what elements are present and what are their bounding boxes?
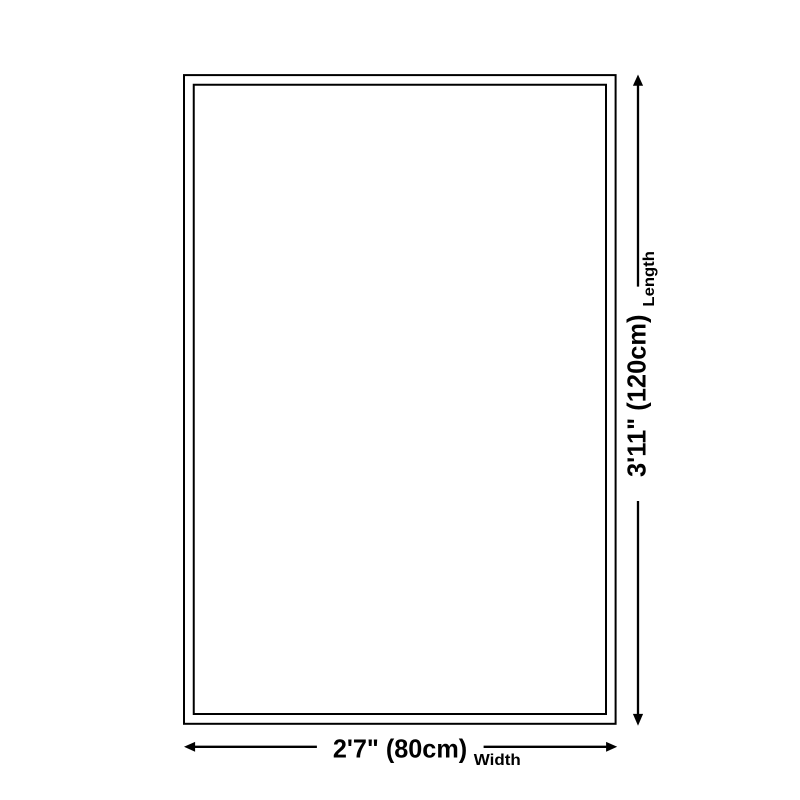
svg-text:3'11" (120cm): 3'11" (120cm) xyxy=(621,315,651,478)
svg-text:Width: Width xyxy=(474,752,521,769)
svg-text:Length: Length xyxy=(641,251,658,307)
svg-text:2'7" (80cm): 2'7" (80cm) xyxy=(333,734,467,764)
